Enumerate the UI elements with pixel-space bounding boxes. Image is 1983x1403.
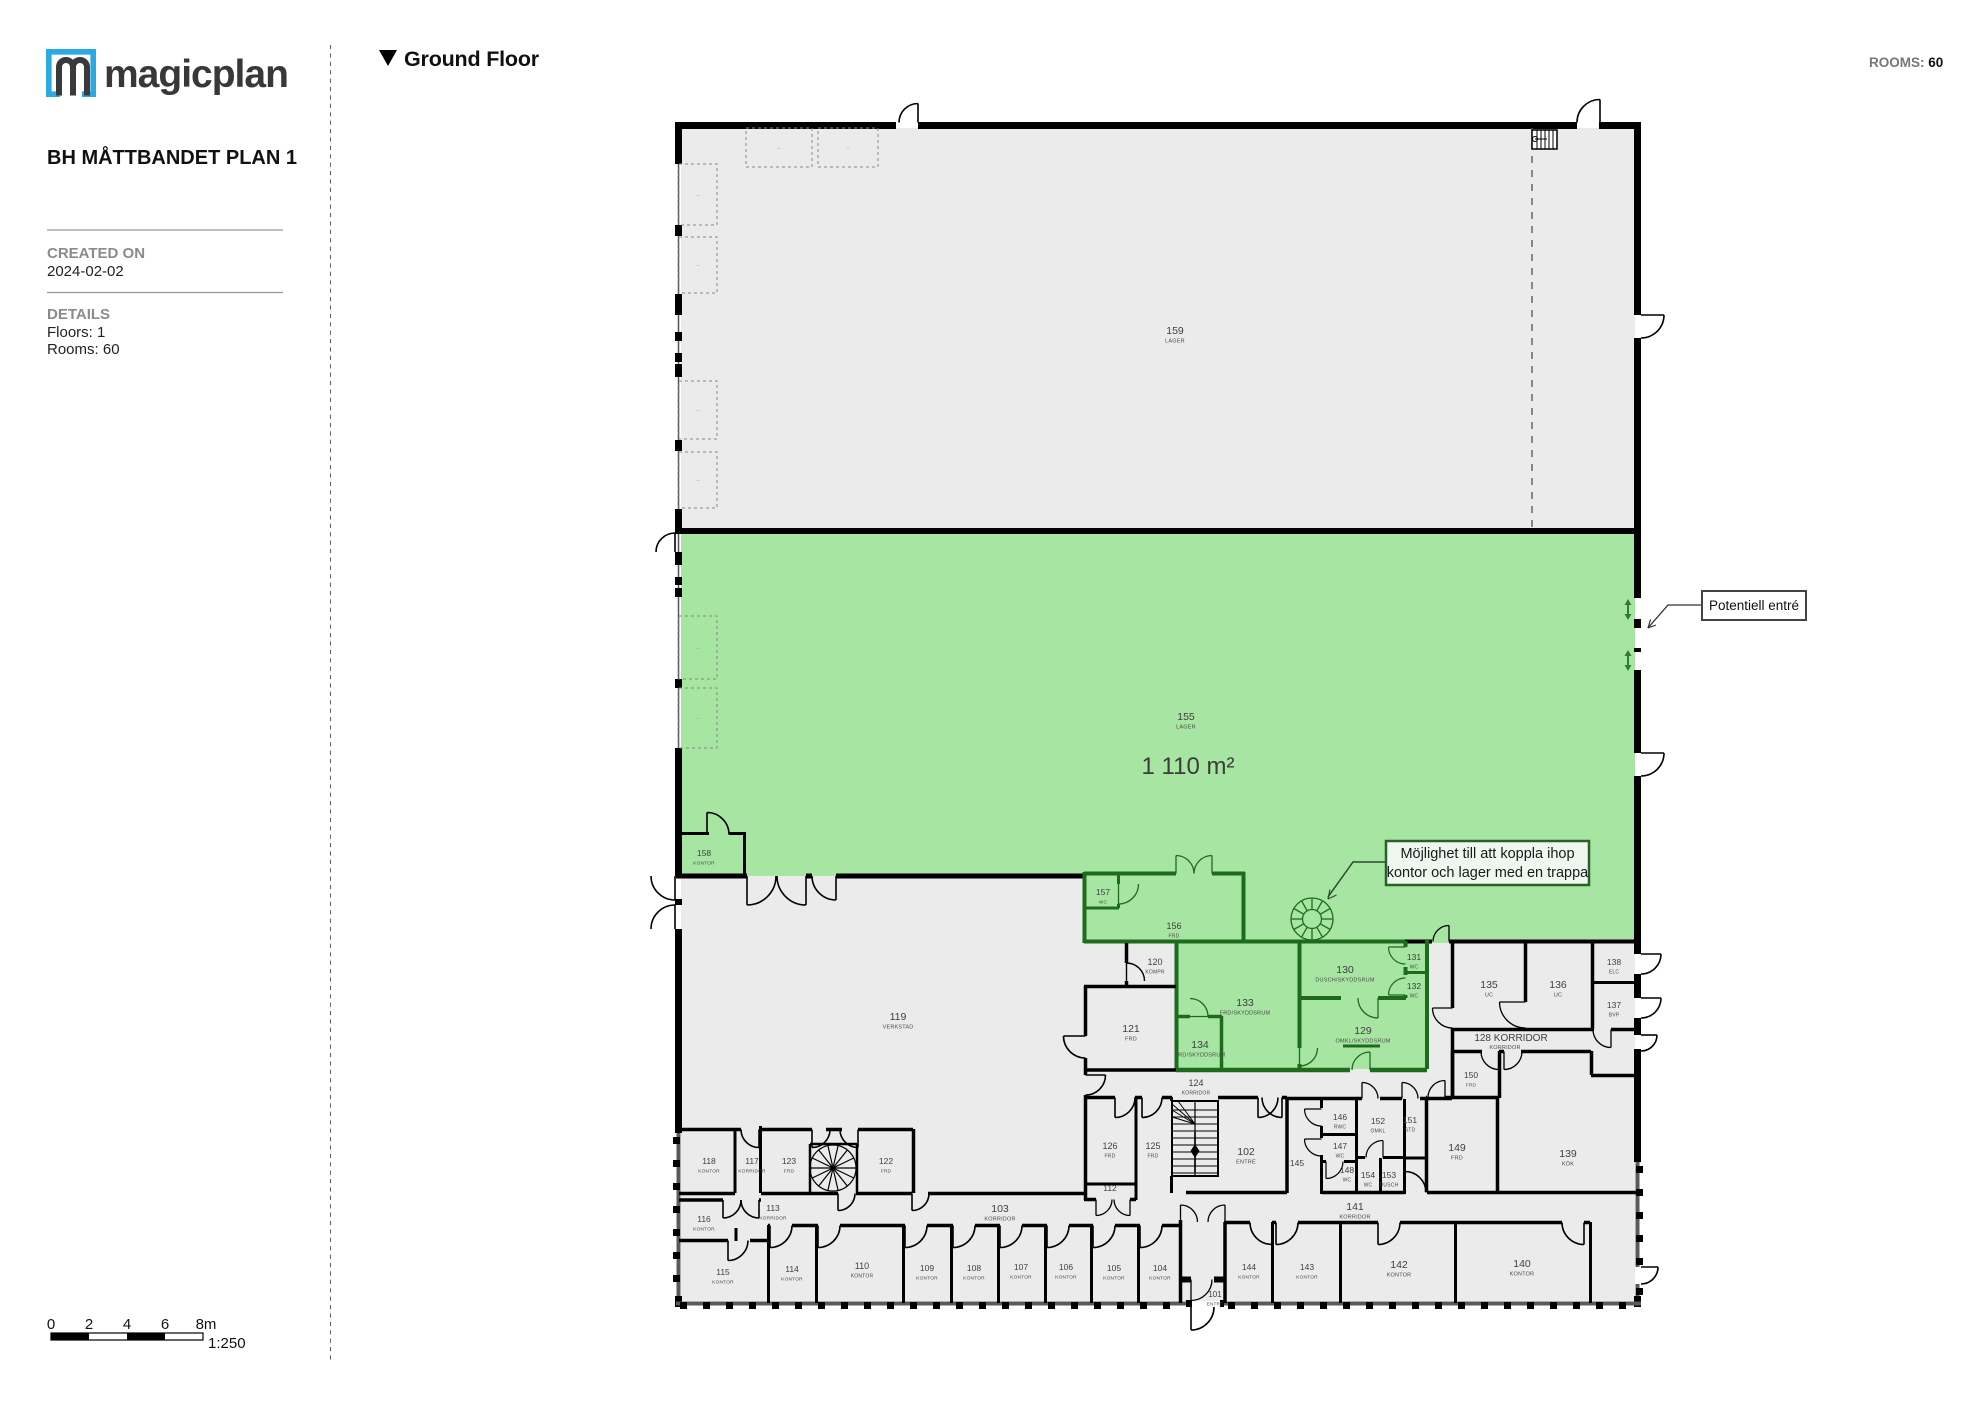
- svg-text:8m: 8m: [196, 1316, 217, 1333]
- svg-text:117: 117: [745, 1156, 759, 1166]
- svg-text:154: 154: [1361, 1170, 1375, 1180]
- svg-text:148: 148: [1340, 1165, 1354, 1175]
- svg-text:1 110 m²: 1 110 m²: [1142, 753, 1235, 780]
- svg-text:UC: UC: [1554, 993, 1562, 999]
- svg-text:LAGER: LAGER: [1165, 339, 1185, 345]
- svg-text:118: 118: [702, 1156, 716, 1166]
- svg-text:6: 6: [161, 1316, 169, 1333]
- svg-text:STD: STD: [1405, 1128, 1416, 1134]
- svg-text:122: 122: [879, 1156, 893, 1166]
- svg-text:WC: WC: [1343, 1178, 1352, 1184]
- svg-text:120: 120: [1147, 957, 1162, 967]
- svg-text:121: 121: [1122, 1023, 1140, 1035]
- svg-text:FRD: FRD: [1125, 1037, 1137, 1043]
- svg-text:153: 153: [1382, 1170, 1396, 1180]
- svg-text:134: 134: [1191, 1039, 1209, 1051]
- svg-text:137: 137: [1607, 1000, 1621, 1010]
- svg-text:139: 139: [1559, 1148, 1577, 1160]
- svg-text:KONTOR: KONTOR: [1055, 1275, 1077, 1281]
- svg-text:143: 143: [1300, 1262, 1314, 1272]
- svg-text:108: 108: [967, 1263, 981, 1273]
- svg-text:BH MÅTTBANDET PLAN 1: BH MÅTTBANDET PLAN 1: [47, 145, 297, 169]
- svg-text:128 KORRIDOR: 128 KORRIDOR: [1474, 1033, 1547, 1044]
- svg-text:126: 126: [1102, 1141, 1117, 1151]
- svg-text:102: 102: [1237, 1146, 1255, 1158]
- svg-text:KONTOR: KONTOR: [781, 1277, 803, 1283]
- svg-text:KORRIDOR: KORRIDOR: [1339, 1215, 1370, 1221]
- svg-text:Rooms: 60: Rooms: 60: [47, 341, 120, 358]
- svg-text:--: --: [696, 646, 700, 652]
- svg-text:--: --: [696, 193, 700, 199]
- svg-text:--: --: [846, 146, 850, 152]
- svg-text:2: 2: [85, 1316, 93, 1333]
- svg-text:150: 150: [1464, 1070, 1478, 1080]
- svg-text:115: 115: [716, 1267, 730, 1277]
- svg-text:KONTOR: KONTOR: [698, 1169, 720, 1175]
- svg-text:KONTOR: KONTOR: [712, 1280, 734, 1286]
- svg-text:WC: WC: [1099, 900, 1108, 906]
- svg-text:KONTOR: KONTOR: [693, 1227, 715, 1233]
- svg-text:129: 129: [1354, 1025, 1372, 1037]
- svg-text:KORRIDOR: KORRIDOR: [1182, 1091, 1211, 1097]
- svg-text:1:250: 1:250: [208, 1335, 246, 1352]
- svg-text:130: 130: [1336, 964, 1354, 976]
- svg-text:KONTOR: KONTOR: [963, 1276, 985, 1282]
- svg-text:ROOMS: 60: ROOMS: 60: [1869, 55, 1943, 70]
- svg-text:141: 141: [1346, 1201, 1364, 1213]
- svg-text:125: 125: [1145, 1141, 1160, 1151]
- svg-text:KONTOR: KONTOR: [1510, 1272, 1535, 1278]
- svg-text:147: 147: [1333, 1141, 1347, 1151]
- svg-text:103: 103: [991, 1203, 1009, 1215]
- svg-text:114: 114: [785, 1264, 799, 1274]
- svg-text:RWC: RWC: [1334, 1125, 1347, 1131]
- svg-text:KÖK: KÖK: [1562, 1161, 1574, 1168]
- svg-text:4: 4: [123, 1316, 131, 1333]
- svg-text:KONTOR: KONTOR: [1103, 1276, 1125, 1282]
- svg-text:WC: WC: [1410, 994, 1419, 1000]
- svg-text:UC: UC: [1485, 993, 1493, 999]
- svg-text:144: 144: [1242, 1262, 1256, 1272]
- svg-text:OMKL/SKYDDSRUM: OMKL/SKYDDSRUM: [1335, 1039, 1390, 1045]
- svg-text:--: --: [696, 478, 700, 484]
- svg-text:LAGER: LAGER: [1176, 725, 1196, 731]
- svg-text:Möjlighet till att koppla ihop: Möjlighet till att koppla ihop: [1400, 846, 1574, 862]
- svg-text:FRD: FRD: [881, 1169, 892, 1175]
- svg-text:VERKSTAD: VERKSTAD: [883, 1025, 914, 1031]
- svg-text:159: 159: [1166, 325, 1184, 337]
- svg-text:132: 132: [1407, 981, 1421, 991]
- svg-text:--: --: [696, 716, 700, 722]
- svg-text:119: 119: [890, 1011, 907, 1023]
- svg-text:ENTRÉ: ENTRÉ: [1236, 1159, 1256, 1166]
- svg-text:KONTOR: KONTOR: [1149, 1276, 1171, 1282]
- svg-text:112: 112: [1103, 1183, 1117, 1193]
- svg-text:149: 149: [1448, 1142, 1466, 1154]
- svg-text:107: 107: [1014, 1262, 1028, 1272]
- svg-text:kontor och lager med en trappa: kontor och lager med en trappa: [1387, 865, 1589, 881]
- svg-text:104: 104: [1153, 1263, 1167, 1273]
- svg-text:KONTOR: KONTOR: [1010, 1275, 1032, 1281]
- svg-text:145: 145: [1290, 1158, 1304, 1168]
- svg-text:152: 152: [1371, 1116, 1385, 1126]
- svg-text:FRD: FRD: [1148, 1154, 1159, 1160]
- svg-text:Ground Floor: Ground Floor: [404, 47, 540, 71]
- svg-text:FRD/SKYDDSRUM: FRD/SKYDDSRUM: [1175, 1053, 1226, 1059]
- svg-text:Potentiell entré: Potentiell entré: [1709, 598, 1799, 613]
- svg-text:Floors: 1: Floors: 1: [47, 324, 105, 341]
- svg-text:KONTOR: KONTOR: [916, 1276, 938, 1282]
- svg-text:FRD/SKYDDSRUM: FRD/SKYDDSRUM: [1220, 1011, 1271, 1017]
- svg-text:magicplan: magicplan: [104, 53, 288, 96]
- svg-text:124: 124: [1188, 1078, 1203, 1088]
- svg-text:FRD: FRD: [1169, 934, 1180, 940]
- svg-text:135: 135: [1480, 979, 1498, 991]
- svg-text:105: 105: [1107, 1263, 1121, 1273]
- svg-text:140: 140: [1513, 1258, 1531, 1270]
- svg-text:151: 151: [1403, 1115, 1417, 1125]
- svg-text:KONTOR: KONTOR: [693, 861, 715, 867]
- svg-text:KONTOR: KONTOR: [851, 1274, 874, 1280]
- svg-text:158: 158: [697, 848, 711, 858]
- svg-text:WC: WC: [1336, 1154, 1345, 1160]
- svg-text:136: 136: [1549, 979, 1567, 991]
- svg-text:155: 155: [1177, 711, 1195, 723]
- svg-text:0: 0: [47, 1316, 55, 1333]
- svg-text:WC: WC: [1410, 965, 1419, 971]
- svg-text:FRD: FRD: [1466, 1083, 1477, 1089]
- svg-text:2024-02-02: 2024-02-02: [47, 263, 124, 280]
- svg-text:--: --: [696, 408, 700, 414]
- svg-text:133: 133: [1236, 997, 1254, 1009]
- svg-text:--: --: [777, 146, 781, 152]
- svg-text:CREATED ON: CREATED ON: [47, 245, 145, 262]
- svg-text:OMKL: OMKL: [1371, 1129, 1386, 1135]
- svg-text:106: 106: [1059, 1262, 1073, 1272]
- svg-text:KONTOR: KONTOR: [1296, 1275, 1318, 1281]
- svg-text:KOMPR: KOMPR: [1145, 970, 1165, 976]
- svg-text:138: 138: [1607, 957, 1621, 967]
- svg-text:DETAILS: DETAILS: [47, 306, 110, 323]
- svg-text:101: 101: [1208, 1290, 1222, 1299]
- svg-text:DUSCH/SKYDDSRUM: DUSCH/SKYDDSRUM: [1315, 978, 1374, 984]
- svg-text:116: 116: [697, 1214, 711, 1224]
- svg-text:ENTRÉ: ENTRÉ: [1207, 1301, 1224, 1307]
- svg-text:KORRIDOR: KORRIDOR: [738, 1169, 766, 1175]
- svg-text:KORRIDOR: KORRIDOR: [1489, 1045, 1520, 1051]
- svg-text:142: 142: [1390, 1259, 1408, 1271]
- svg-text:KONTOR: KONTOR: [1387, 1273, 1412, 1279]
- svg-text:KORRIDOR: KORRIDOR: [759, 1216, 787, 1222]
- svg-text:--: --: [696, 263, 700, 269]
- svg-text:157: 157: [1096, 887, 1110, 897]
- svg-text:110: 110: [855, 1261, 869, 1271]
- svg-text:FRD: FRD: [1105, 1154, 1116, 1160]
- svg-text:KORRIDOR: KORRIDOR: [984, 1217, 1015, 1223]
- svg-text:WC: WC: [1364, 1183, 1373, 1189]
- svg-text:109: 109: [920, 1263, 934, 1273]
- svg-text:131: 131: [1407, 952, 1421, 962]
- svg-text:BVP: BVP: [1609, 1013, 1620, 1019]
- svg-text:123: 123: [782, 1156, 796, 1166]
- svg-text:FRD: FRD: [784, 1169, 795, 1175]
- svg-text:156: 156: [1166, 921, 1181, 931]
- svg-text:113: 113: [766, 1203, 780, 1213]
- svg-text:FRD: FRD: [1451, 1156, 1463, 1162]
- svg-text:146: 146: [1333, 1112, 1347, 1122]
- svg-text:KONTOR: KONTOR: [1238, 1275, 1260, 1281]
- svg-text:ELC: ELC: [1609, 970, 1620, 976]
- svg-text:DUSCH: DUSCH: [1380, 1183, 1399, 1189]
